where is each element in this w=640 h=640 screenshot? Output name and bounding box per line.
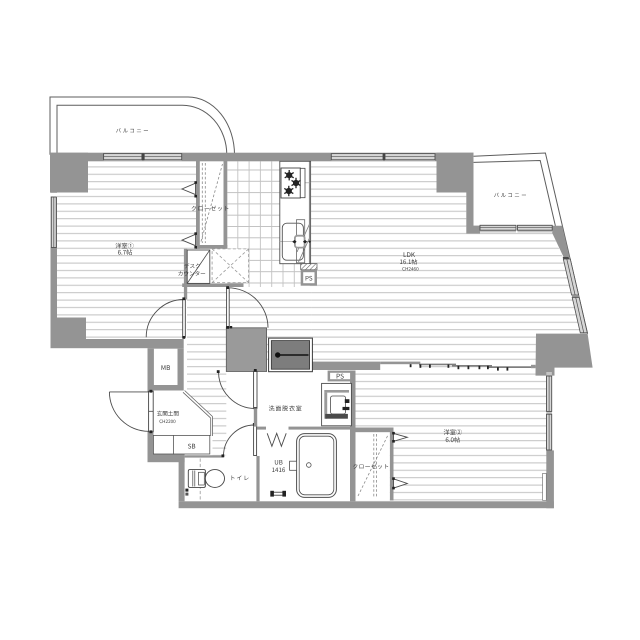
svg-text:クローゼット: クローゼット — [191, 203, 230, 212]
svg-text:カウンター: カウンター — [178, 270, 206, 278]
svg-text:CH2200: CH2200 — [159, 419, 176, 425]
svg-text:6.0帖: 6.0帖 — [445, 435, 460, 444]
svg-text:トイレ: トイレ — [230, 473, 251, 482]
svg-text:CH2460: CH2460 — [402, 266, 419, 272]
svg-text:16.1帖: 16.1帖 — [400, 257, 418, 266]
svg-text:玄関土間: 玄関土間 — [157, 410, 180, 418]
svg-text:バルコニー: バルコニー — [116, 126, 150, 134]
svg-text:6.7帖: 6.7帖 — [118, 248, 133, 257]
svg-text:1416: 1416 — [272, 465, 286, 474]
svg-text:SB: SB — [188, 442, 196, 451]
svg-text:PS: PS — [336, 371, 344, 381]
svg-text:洗面脱衣室: 洗面脱衣室 — [269, 404, 303, 413]
svg-text:バルコニー: バルコニー — [494, 191, 528, 199]
svg-text:クローゼット: クローゼット — [352, 462, 389, 471]
svg-text:PS: PS — [305, 273, 313, 282]
svg-text:MB: MB — [161, 363, 170, 372]
